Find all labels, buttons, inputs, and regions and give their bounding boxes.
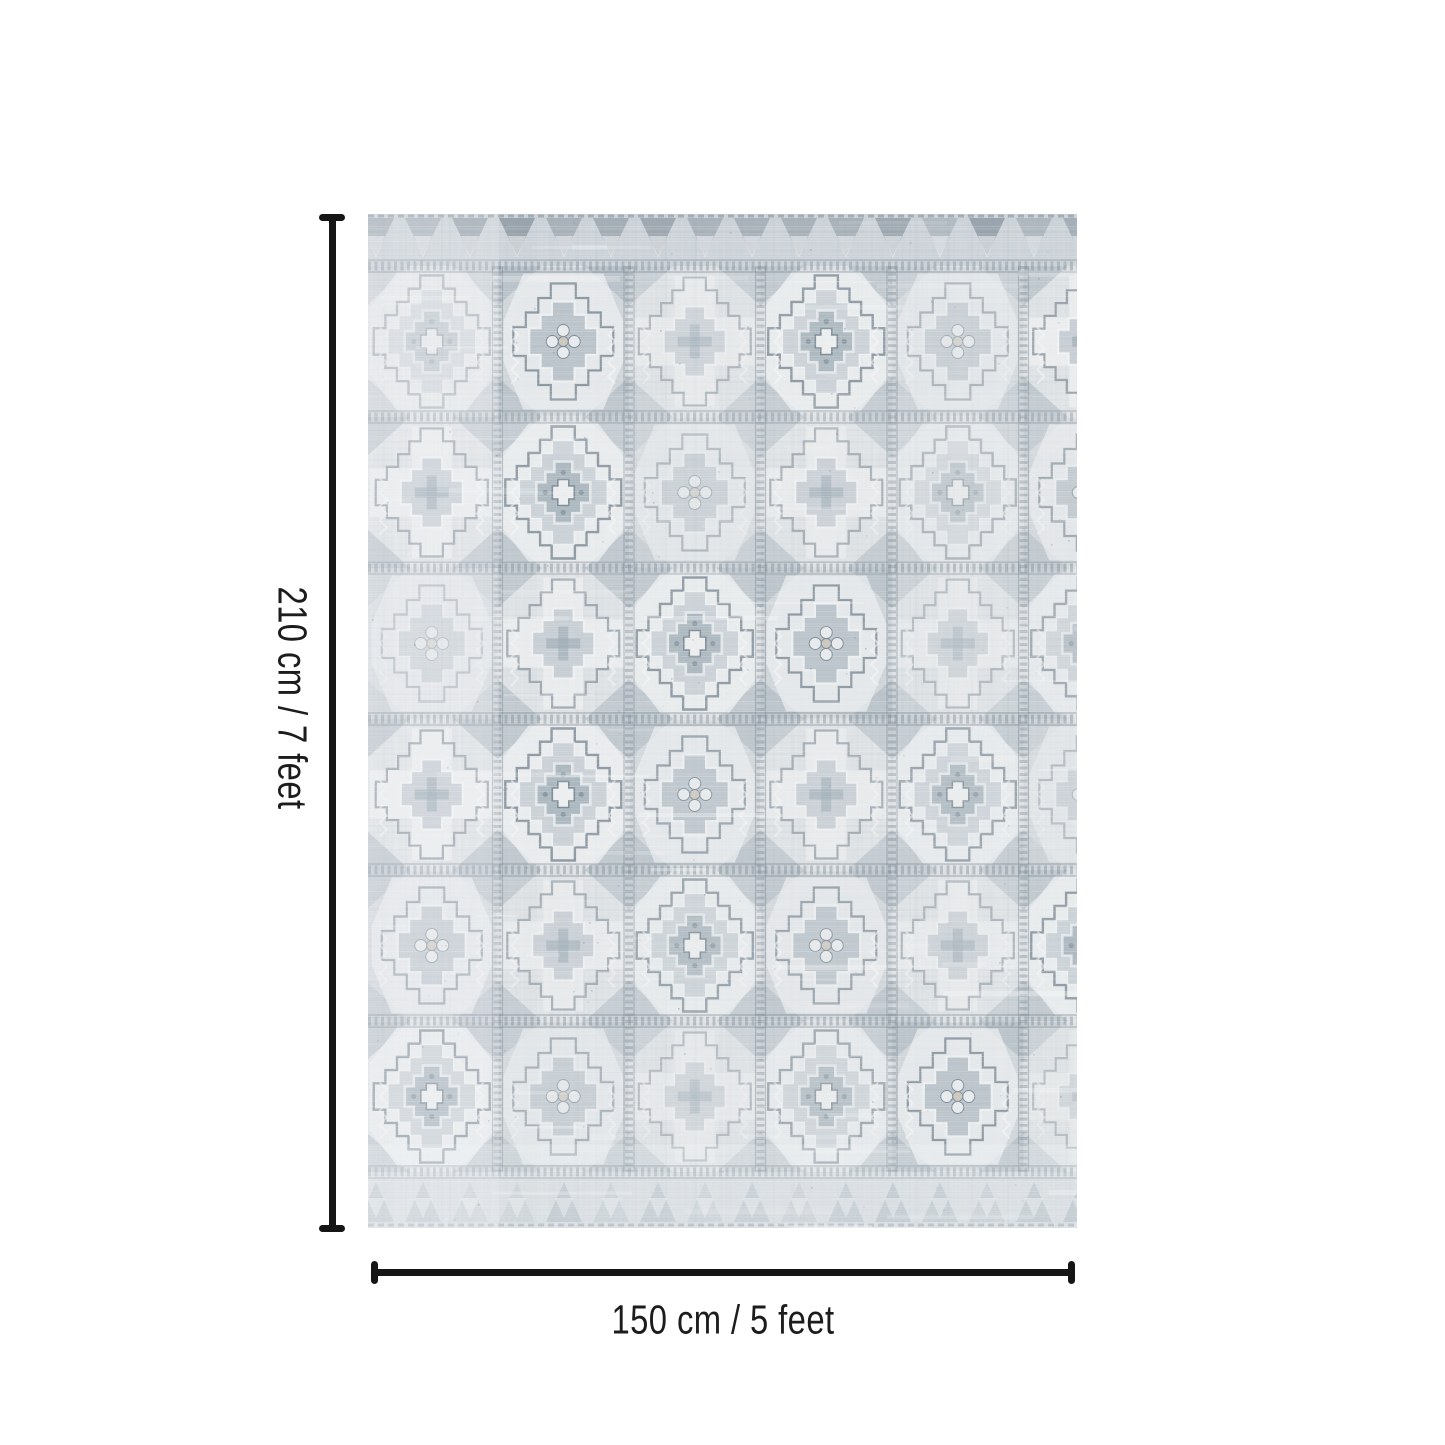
height-dimension-line [329, 214, 336, 1232]
height-dimension-cap-bottom [319, 1225, 345, 1232]
rug-image [368, 214, 1077, 1228]
width-dimension-cap-right [1068, 1261, 1075, 1284]
width-dimension-line [371, 1269, 1075, 1276]
height-dimension-cap-top [319, 214, 345, 221]
height-dimension-label: 210 cm / 7 feet [269, 587, 316, 810]
width-dimension-cap-left [371, 1261, 378, 1284]
rug-dimension-diagram: 210 cm / 7 feet 150 cm / 5 feet [0, 0, 1445, 1445]
width-dimension-label: 150 cm / 5 feet [612, 1297, 835, 1344]
